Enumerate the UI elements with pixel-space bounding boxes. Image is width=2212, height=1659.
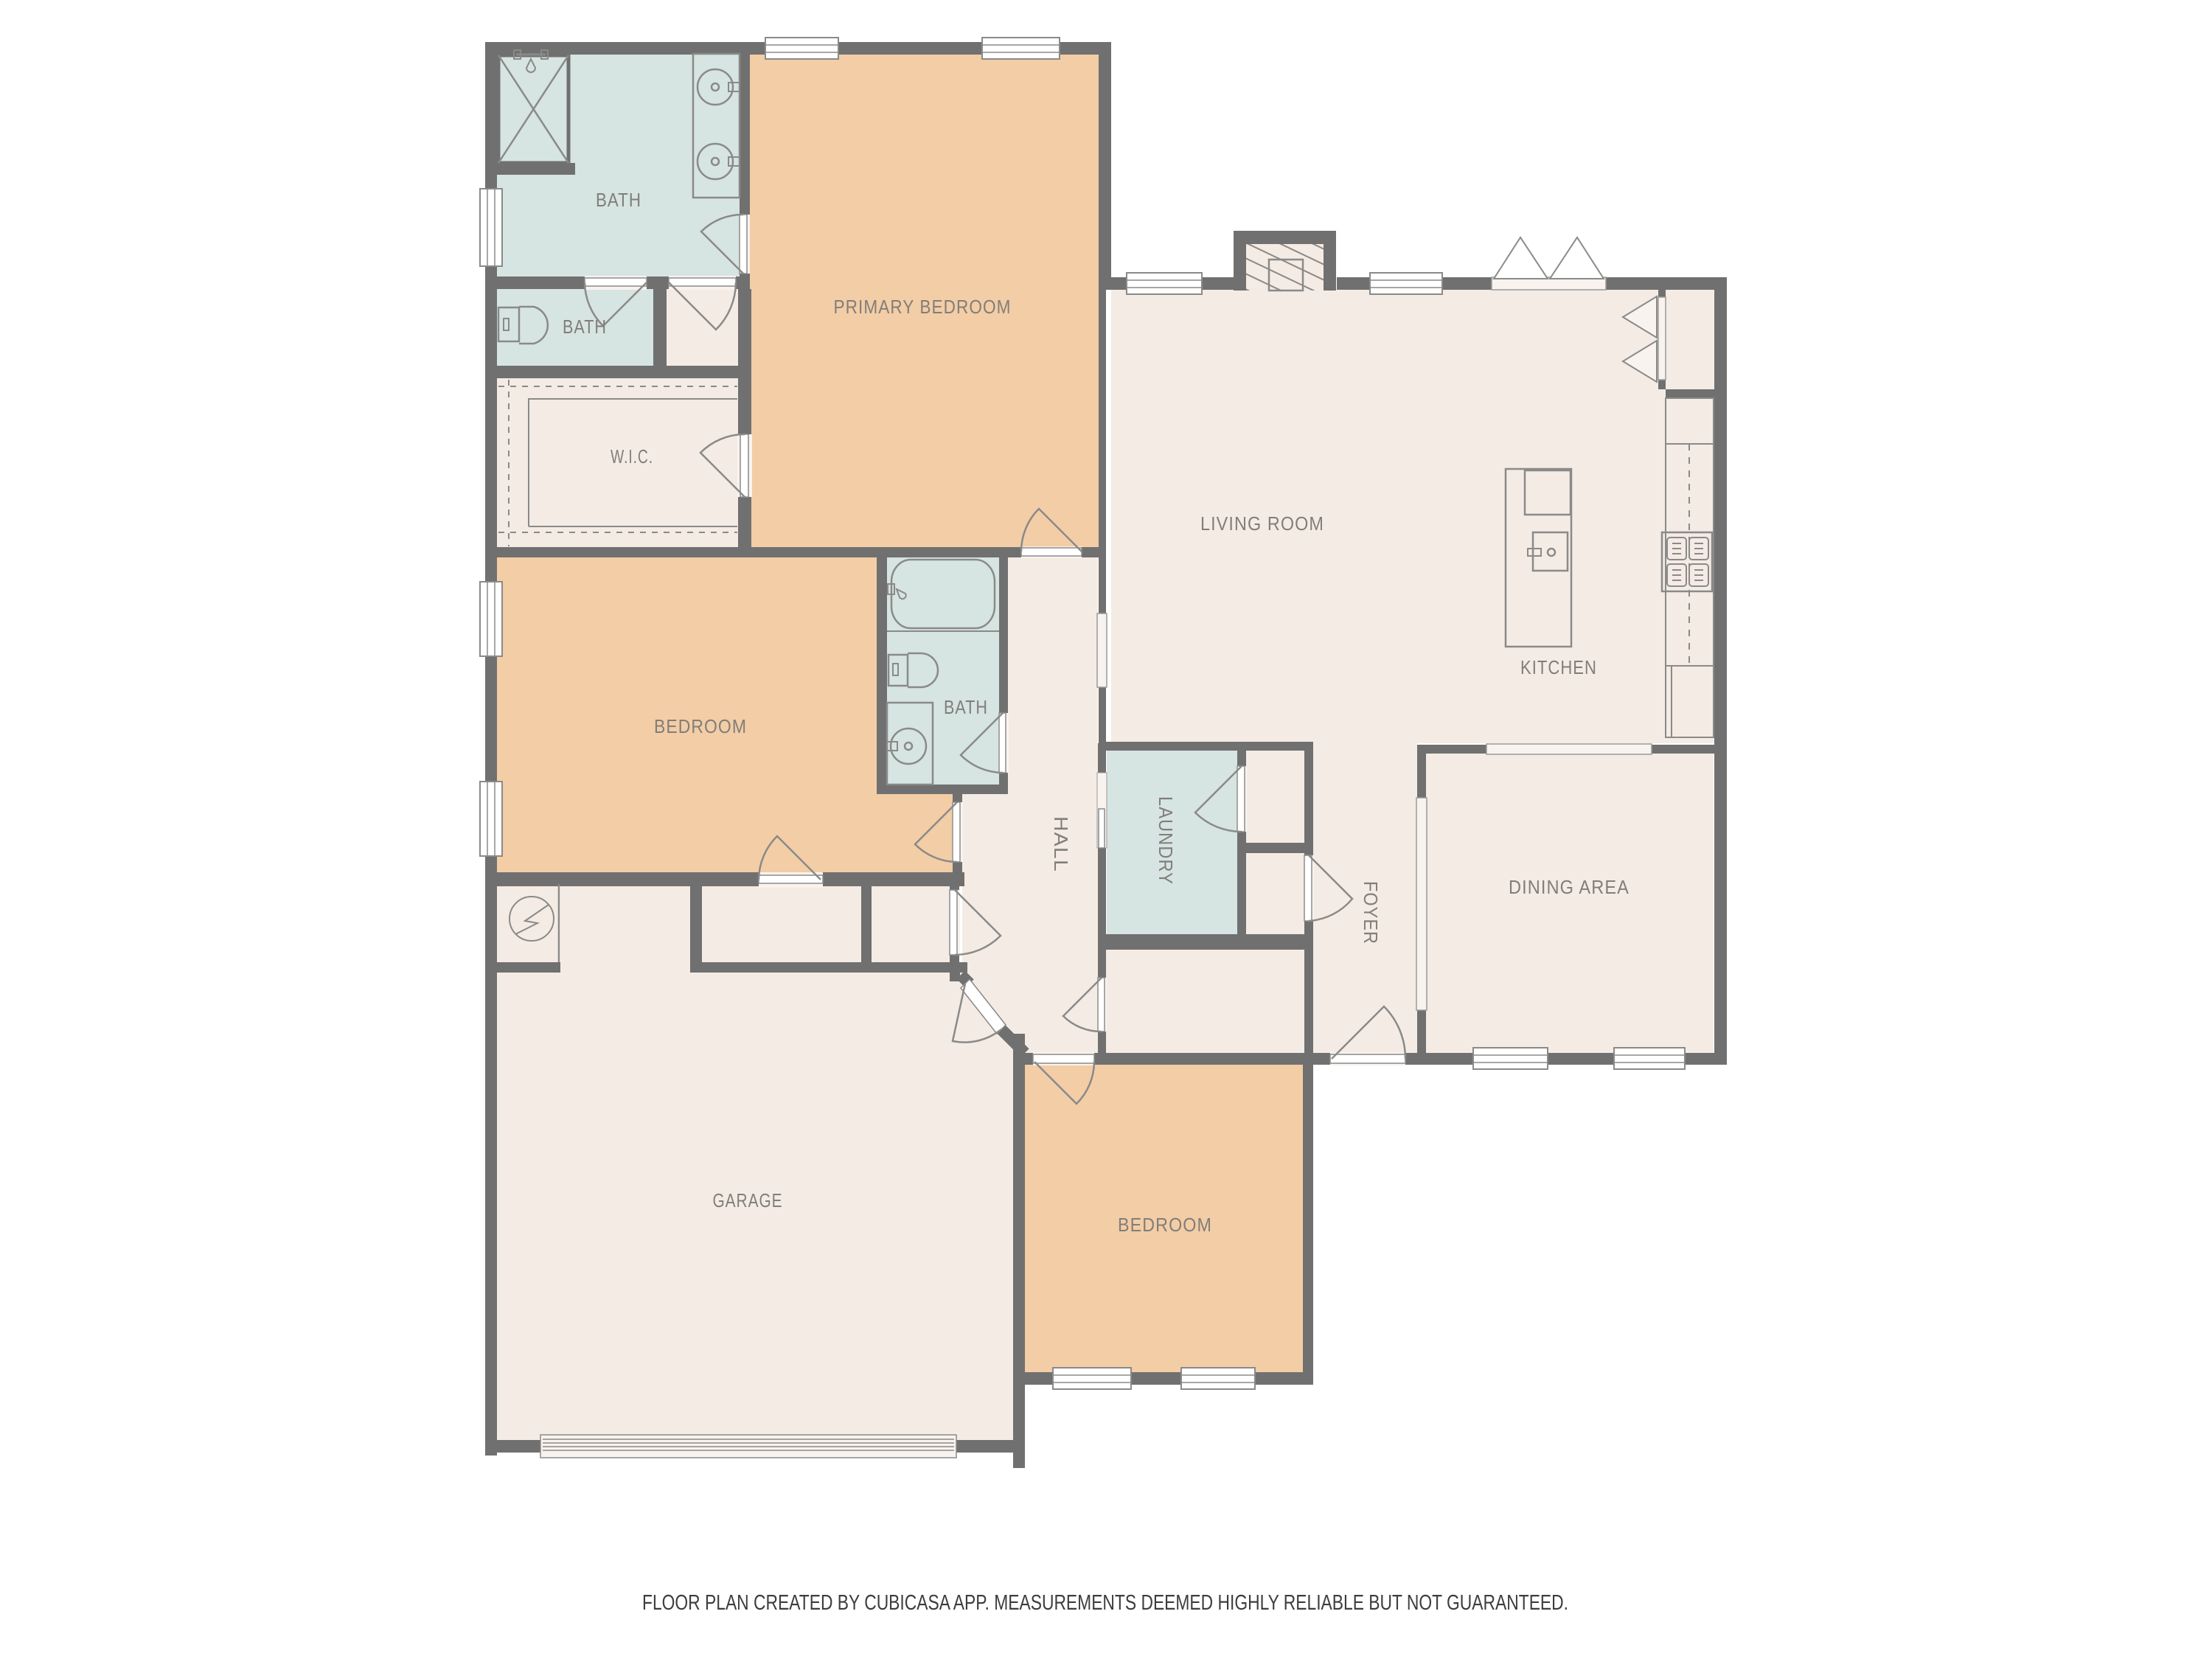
svg-text:KITCHEN: KITCHEN — [1520, 656, 1597, 678]
svg-text:BEDROOM: BEDROOM — [1118, 1214, 1212, 1236]
svg-text:BATH: BATH — [563, 316, 607, 338]
svg-text:HALL: HALL — [1050, 816, 1072, 872]
svg-text:GARAGE: GARAGE — [713, 1189, 783, 1211]
svg-text:DINING AREA: DINING AREA — [1509, 876, 1630, 898]
svg-text:LAUNDRY: LAUNDRY — [1155, 796, 1177, 885]
svg-text:BEDROOM: BEDROOM — [654, 715, 747, 737]
svg-text:BATH: BATH — [596, 189, 641, 211]
svg-text:W.I.C.: W.I.C. — [611, 445, 653, 467]
svg-text:FOYER: FOYER — [1360, 881, 1382, 945]
svg-text:PRIMARY BEDROOM: PRIMARY BEDROOM — [834, 296, 1012, 318]
svg-text:BATH: BATH — [944, 696, 988, 718]
svg-text:LIVING ROOM: LIVING ROOM — [1200, 512, 1324, 535]
svg-text:FLOOR PLAN CREATED BY CUBICASA: FLOOR PLAN CREATED BY CUBICASA APP. MEAS… — [642, 1591, 1568, 1615]
